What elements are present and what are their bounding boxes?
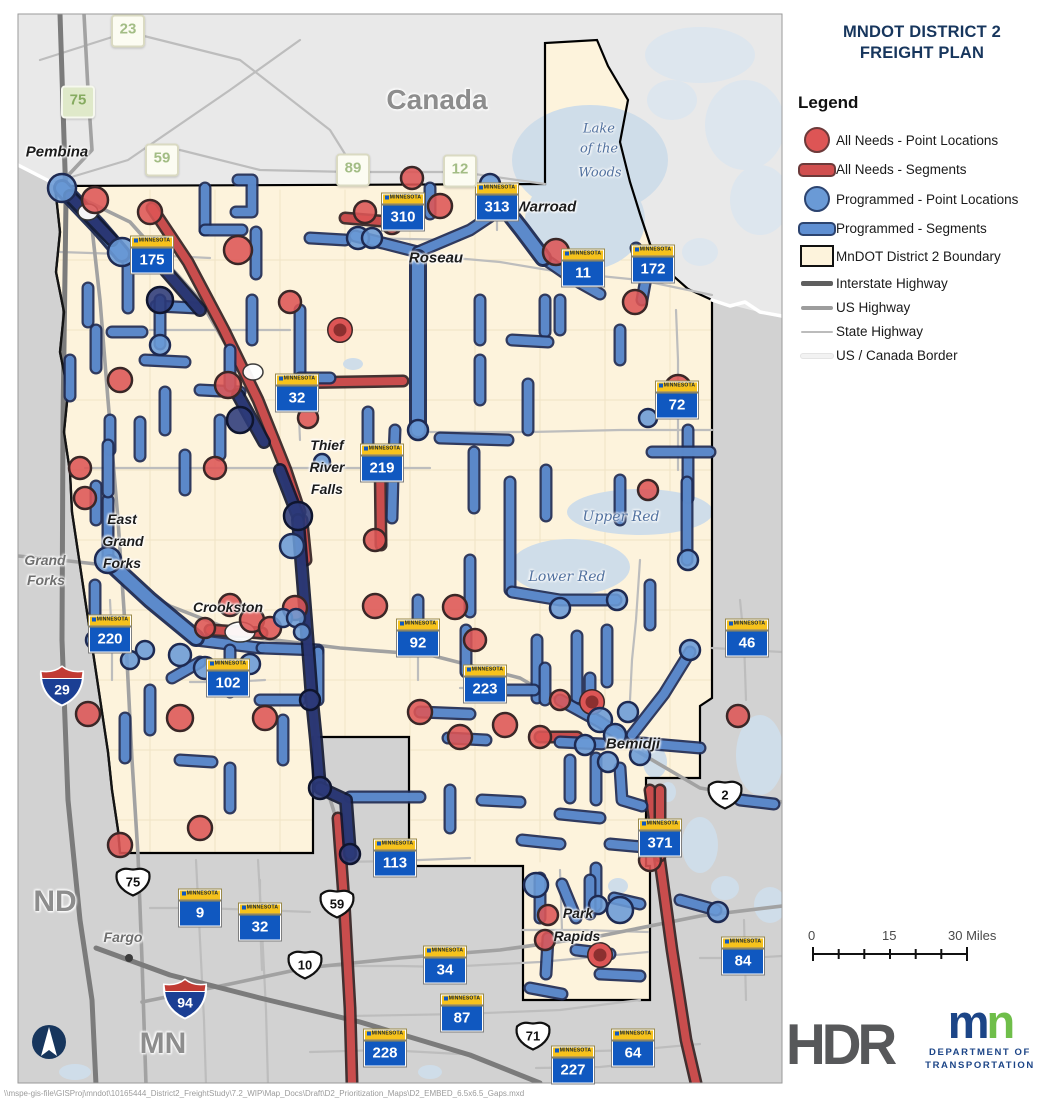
legend-label: US Highway <box>836 300 910 315</box>
legend-heading: Legend <box>798 93 1056 113</box>
district-boundary-swatch <box>800 245 834 267</box>
scale-bar-ticks <box>800 944 1000 964</box>
mndot-caption: DEPARTMENT OF TRANSPORTATION <box>905 1046 1055 1073</box>
page-title: MNDOT DISTRICT 2 FREIGHT PLAN <box>788 22 1056 63</box>
mndot-caption-line1: DEPARTMENT OF <box>905 1046 1055 1059</box>
blue-segment-swatch <box>798 222 836 236</box>
title-line-1: MNDOT DISTRICT 2 <box>788 22 1056 43</box>
scale-label-0: 0 <box>808 928 815 943</box>
mndot-logo: mn DEPARTMENT OF TRANSPORTATION <box>905 1000 1055 1073</box>
legend-label: All Needs - Segments <box>836 162 967 177</box>
hdr-logo: HDR <box>786 1010 893 1077</box>
legend: Legend All Needs - Point Locations All N… <box>798 93 1056 363</box>
legend-label: Programmed - Point Locations <box>836 192 1018 207</box>
legend-item-us-highway: US Highway <box>798 300 1056 315</box>
legend-label: All Needs - Point Locations <box>836 133 998 148</box>
legend-label: Programmed - Segments <box>836 221 987 236</box>
mndot-mn-mark: mn <box>905 1000 1055 1044</box>
legend-label: Interstate Highway <box>836 276 948 291</box>
mndot-m: m <box>948 995 987 1048</box>
legend-label: State Highway <box>836 324 923 339</box>
state-highway-line-swatch <box>801 331 833 334</box>
red-segment-swatch <box>798 163 836 177</box>
scale-bar: 0 15 30 Miles <box>800 928 1020 967</box>
us-highway-line-swatch <box>801 306 833 310</box>
blue-point-swatch <box>804 186 830 212</box>
legend-item-programmed-segments: Programmed - Segments <box>798 221 1056 236</box>
mndot-n: n <box>987 995 1013 1048</box>
legend-item-state-highway: State Highway <box>798 324 1056 339</box>
legend-item-all-needs-points: All Needs - Point Locations <box>798 127 1056 153</box>
title-line-2: FREIGHT PLAN <box>788 43 1056 64</box>
legend-item-district-boundary: MnDOT District 2 Boundary <box>798 245 1056 267</box>
legend-label: MnDOT District 2 Boundary <box>836 249 1001 264</box>
legend-item-all-needs-segments: All Needs - Segments <box>798 162 1056 177</box>
border-line-swatch <box>801 354 833 358</box>
map-layers <box>18 14 790 1085</box>
side-panel: MNDOT DISTRICT 2 FREIGHT PLAN Legend All… <box>788 0 1056 372</box>
red-point-swatch <box>804 127 830 153</box>
mndot-caption-line2: TRANSPORTATION <box>905 1059 1055 1072</box>
legend-item-programmed-points: Programmed - Point Locations <box>798 186 1056 212</box>
legend-item-us-canada-border: US / Canada Border <box>798 348 1056 363</box>
scale-label-30: 30 Miles <box>948 928 996 943</box>
scale-label-15: 15 <box>882 928 896 943</box>
file-path: \\mspe-gis-file\GISProj\mndot\10165444_D… <box>4 1089 524 1098</box>
legend-label: US / Canada Border <box>836 348 958 363</box>
legend-item-interstate: Interstate Highway <box>798 276 1056 291</box>
interstate-line-swatch <box>801 281 833 286</box>
